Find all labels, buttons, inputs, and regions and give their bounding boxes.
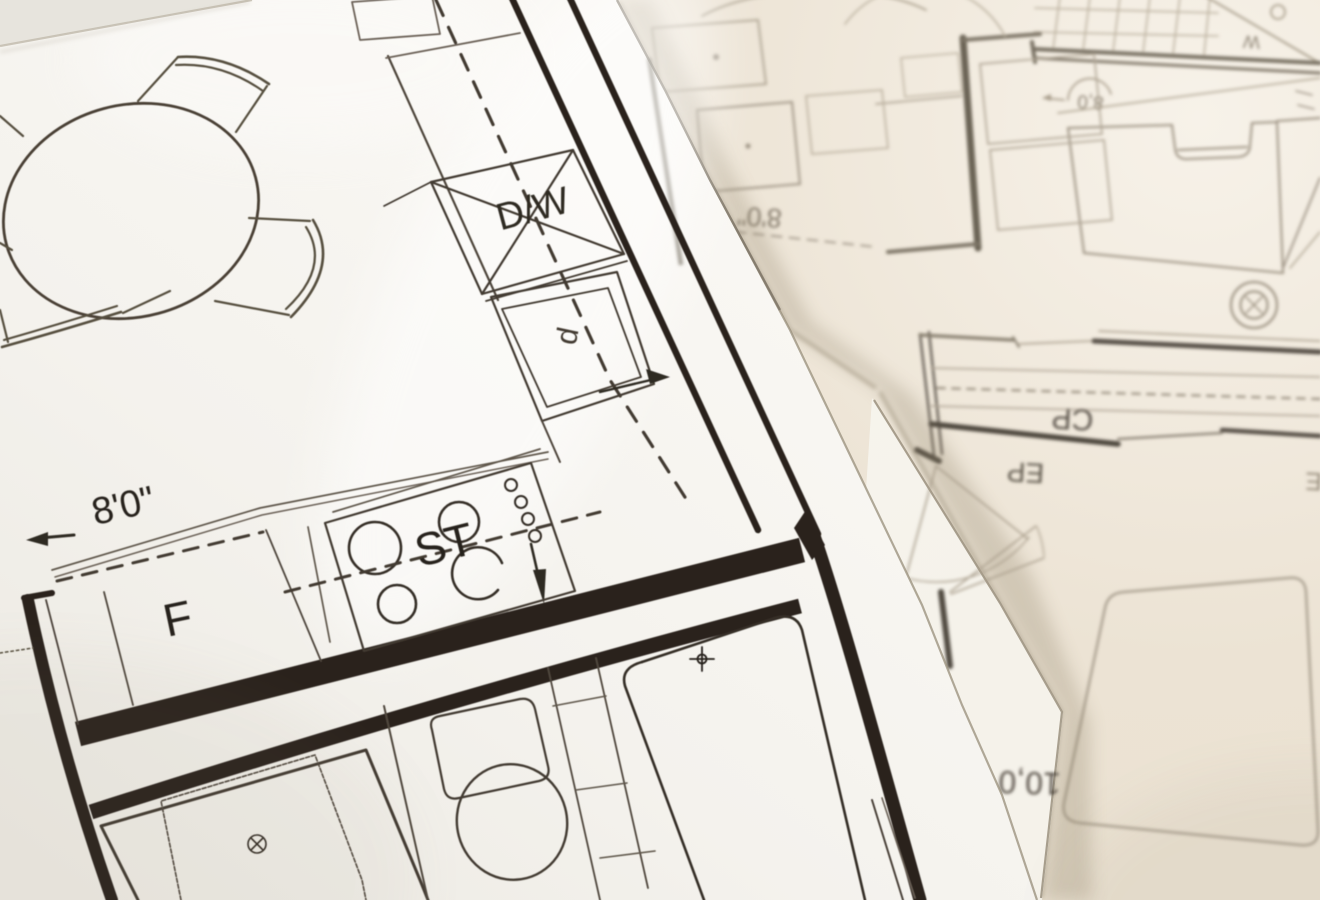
svg-text:E: E	[1305, 467, 1320, 496]
svg-text:EP: EP	[1006, 456, 1045, 489]
svg-text:W: W	[1242, 31, 1260, 52]
svg-text:CP: CP	[1051, 401, 1094, 436]
svg-text:10,0: 10,0	[998, 764, 1061, 802]
